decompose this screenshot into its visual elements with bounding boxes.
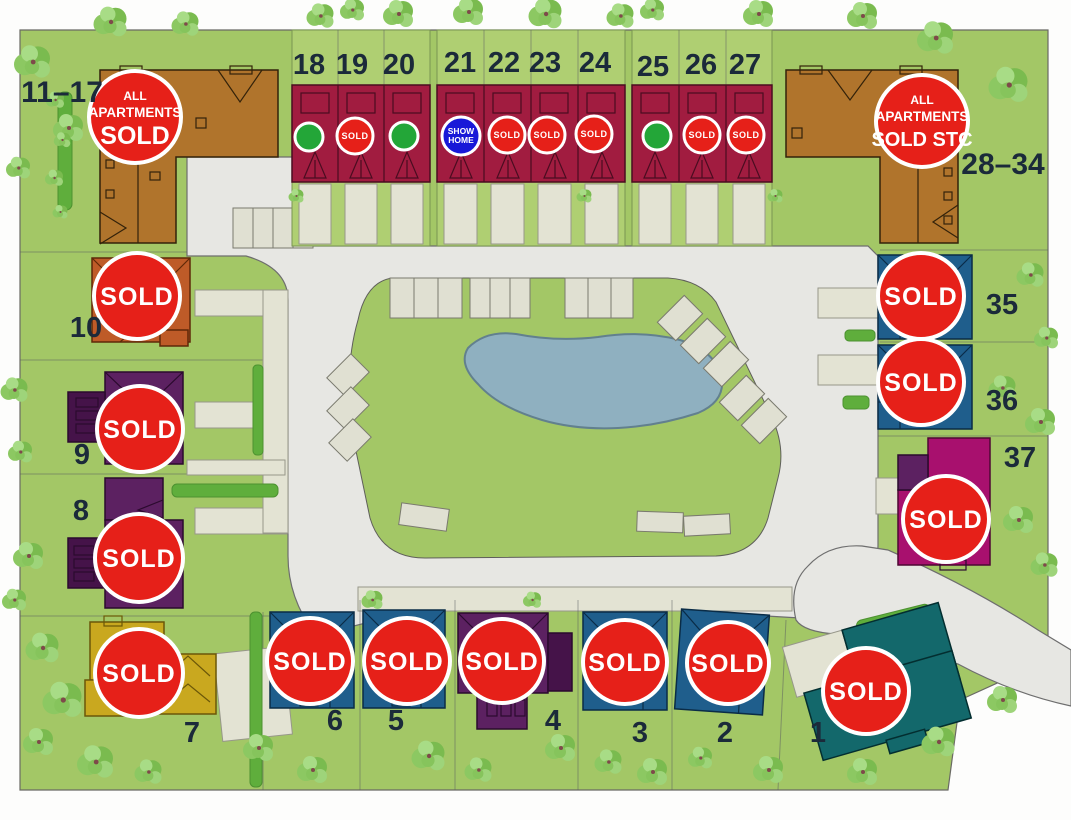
- plot-26-status-badge[interactable]: SOLD: [684, 117, 720, 153]
- plot-7-label: 7: [184, 717, 200, 749]
- plot-24-label: 24: [579, 47, 611, 79]
- plot-35-label: 35: [986, 289, 1018, 321]
- sold-label: SOLD: [100, 283, 173, 311]
- plot-27-label: 27: [729, 49, 761, 81]
- plot-18-status-badge[interactable]: [295, 123, 323, 151]
- svg-text:SOLD: SOLD: [829, 678, 902, 706]
- svg-text:SOLD: SOLD: [691, 650, 764, 678]
- plot-4-status-badge[interactable]: SOLD: [460, 619, 544, 703]
- plot-36-label: 36: [986, 385, 1018, 417]
- svg-text:HOME: HOME: [448, 135, 474, 145]
- plot-8-label: 8: [73, 495, 89, 527]
- plot-37-status-badge[interactable]: SOLD: [903, 476, 989, 562]
- svg-text:SOLD: SOLD: [493, 130, 520, 140]
- plot-6-label: 6: [327, 705, 343, 737]
- plot-23-status-badge[interactable]: SOLD: [529, 117, 565, 153]
- plot-35-status-badge[interactable]: SOLD: [878, 253, 964, 339]
- plot-23-label: 23: [529, 47, 561, 79]
- plot-7-status-badge[interactable]: SOLD: [95, 629, 183, 717]
- plot-3-label: 3: [632, 717, 648, 749]
- svg-text:SOLD: SOLD: [370, 648, 443, 676]
- svg-text:SOLD: SOLD: [465, 648, 538, 676]
- svg-text:SOLD: SOLD: [588, 649, 661, 677]
- plot-1-label: 1: [810, 717, 826, 749]
- svg-text:SOLD: SOLD: [884, 283, 957, 311]
- plot-8-status-badge[interactable]: SOLD: [95, 514, 183, 602]
- plot-10-label: 10: [70, 312, 102, 344]
- plot-5-status-badge[interactable]: SOLD: [364, 618, 450, 704]
- apartments-28-34-badge[interactable]: ALL APARTMENTS SOLD STC: [871, 75, 972, 167]
- plot-36-status-badge[interactable]: SOLD: [878, 339, 964, 425]
- plot-18-label: 18: [293, 49, 325, 81]
- plot-1-status-badge[interactable]: SOLD: [823, 648, 909, 734]
- svg-text:SOLD: SOLD: [103, 416, 176, 444]
- plot-20-label: 20: [383, 49, 415, 81]
- svg-text:SOLD: SOLD: [102, 545, 175, 573]
- plot-5-label: 5: [388, 705, 404, 737]
- plot-6-status-badge[interactable]: SOLD: [267, 618, 353, 704]
- svg-text:ALL: ALL: [910, 93, 933, 107]
- svg-text:SOLD: SOLD: [688, 130, 715, 140]
- svg-text:SOLD: SOLD: [102, 660, 175, 688]
- plot-27-status-badge[interactable]: SOLD: [728, 117, 764, 153]
- plot-37-label: 37: [1004, 442, 1036, 474]
- shared-drive-south: [358, 587, 792, 611]
- svg-text:SOLD STC: SOLD STC: [871, 129, 972, 151]
- svg-text:ALL: ALL: [123, 89, 146, 103]
- plot-2-label: 2: [717, 717, 733, 749]
- svg-text:SOLD: SOLD: [909, 506, 982, 534]
- plot-3-status-badge[interactable]: SOLD: [583, 620, 667, 704]
- plot-9-label: 9: [74, 439, 90, 471]
- range-label-11-17: 11–17: [21, 76, 103, 109]
- plot-19-status-badge[interactable]: SOLD: [337, 118, 373, 154]
- plot-10-status-badge[interactable]: SOLD: [94, 253, 180, 339]
- svg-text:APARTMENTS: APARTMENTS: [876, 109, 969, 124]
- plot-19-label: 19: [336, 49, 368, 81]
- plot-21-show-home-badge[interactable]: SHOW HOME: [442, 117, 480, 155]
- plot-9-status-badge[interactable]: SOLD: [97, 386, 183, 472]
- plot-25-label: 25: [637, 51, 669, 83]
- svg-text:SOLD: SOLD: [533, 130, 560, 140]
- plot-2-status-badge[interactable]: SOLD: [687, 622, 769, 704]
- svg-text:SOLD: SOLD: [884, 369, 957, 397]
- development-site-plan: SOLD SOLD SOLD SOLD SOLD SOLD SOLD SOLD …: [0, 0, 1071, 820]
- plot-20-status-badge[interactable]: [390, 122, 418, 150]
- plot-25-status-badge[interactable]: [643, 122, 671, 150]
- plot-24-status-badge[interactable]: SOLD: [576, 116, 612, 152]
- plot-4-label: 4: [545, 705, 561, 737]
- plot-21-label: 21: [444, 47, 476, 79]
- svg-text:SOLD: SOLD: [273, 648, 346, 676]
- svg-text:SOLD: SOLD: [100, 122, 169, 150]
- range-label-28-34: 28–34: [961, 148, 1045, 181]
- plot-22-label: 22: [488, 47, 520, 79]
- plot-22-status-badge[interactable]: SOLD: [489, 117, 525, 153]
- svg-text:SOLD: SOLD: [580, 129, 607, 139]
- plot-26-label: 26: [685, 49, 717, 81]
- svg-text:SOLD: SOLD: [732, 130, 759, 140]
- svg-text:SOLD: SOLD: [341, 131, 368, 141]
